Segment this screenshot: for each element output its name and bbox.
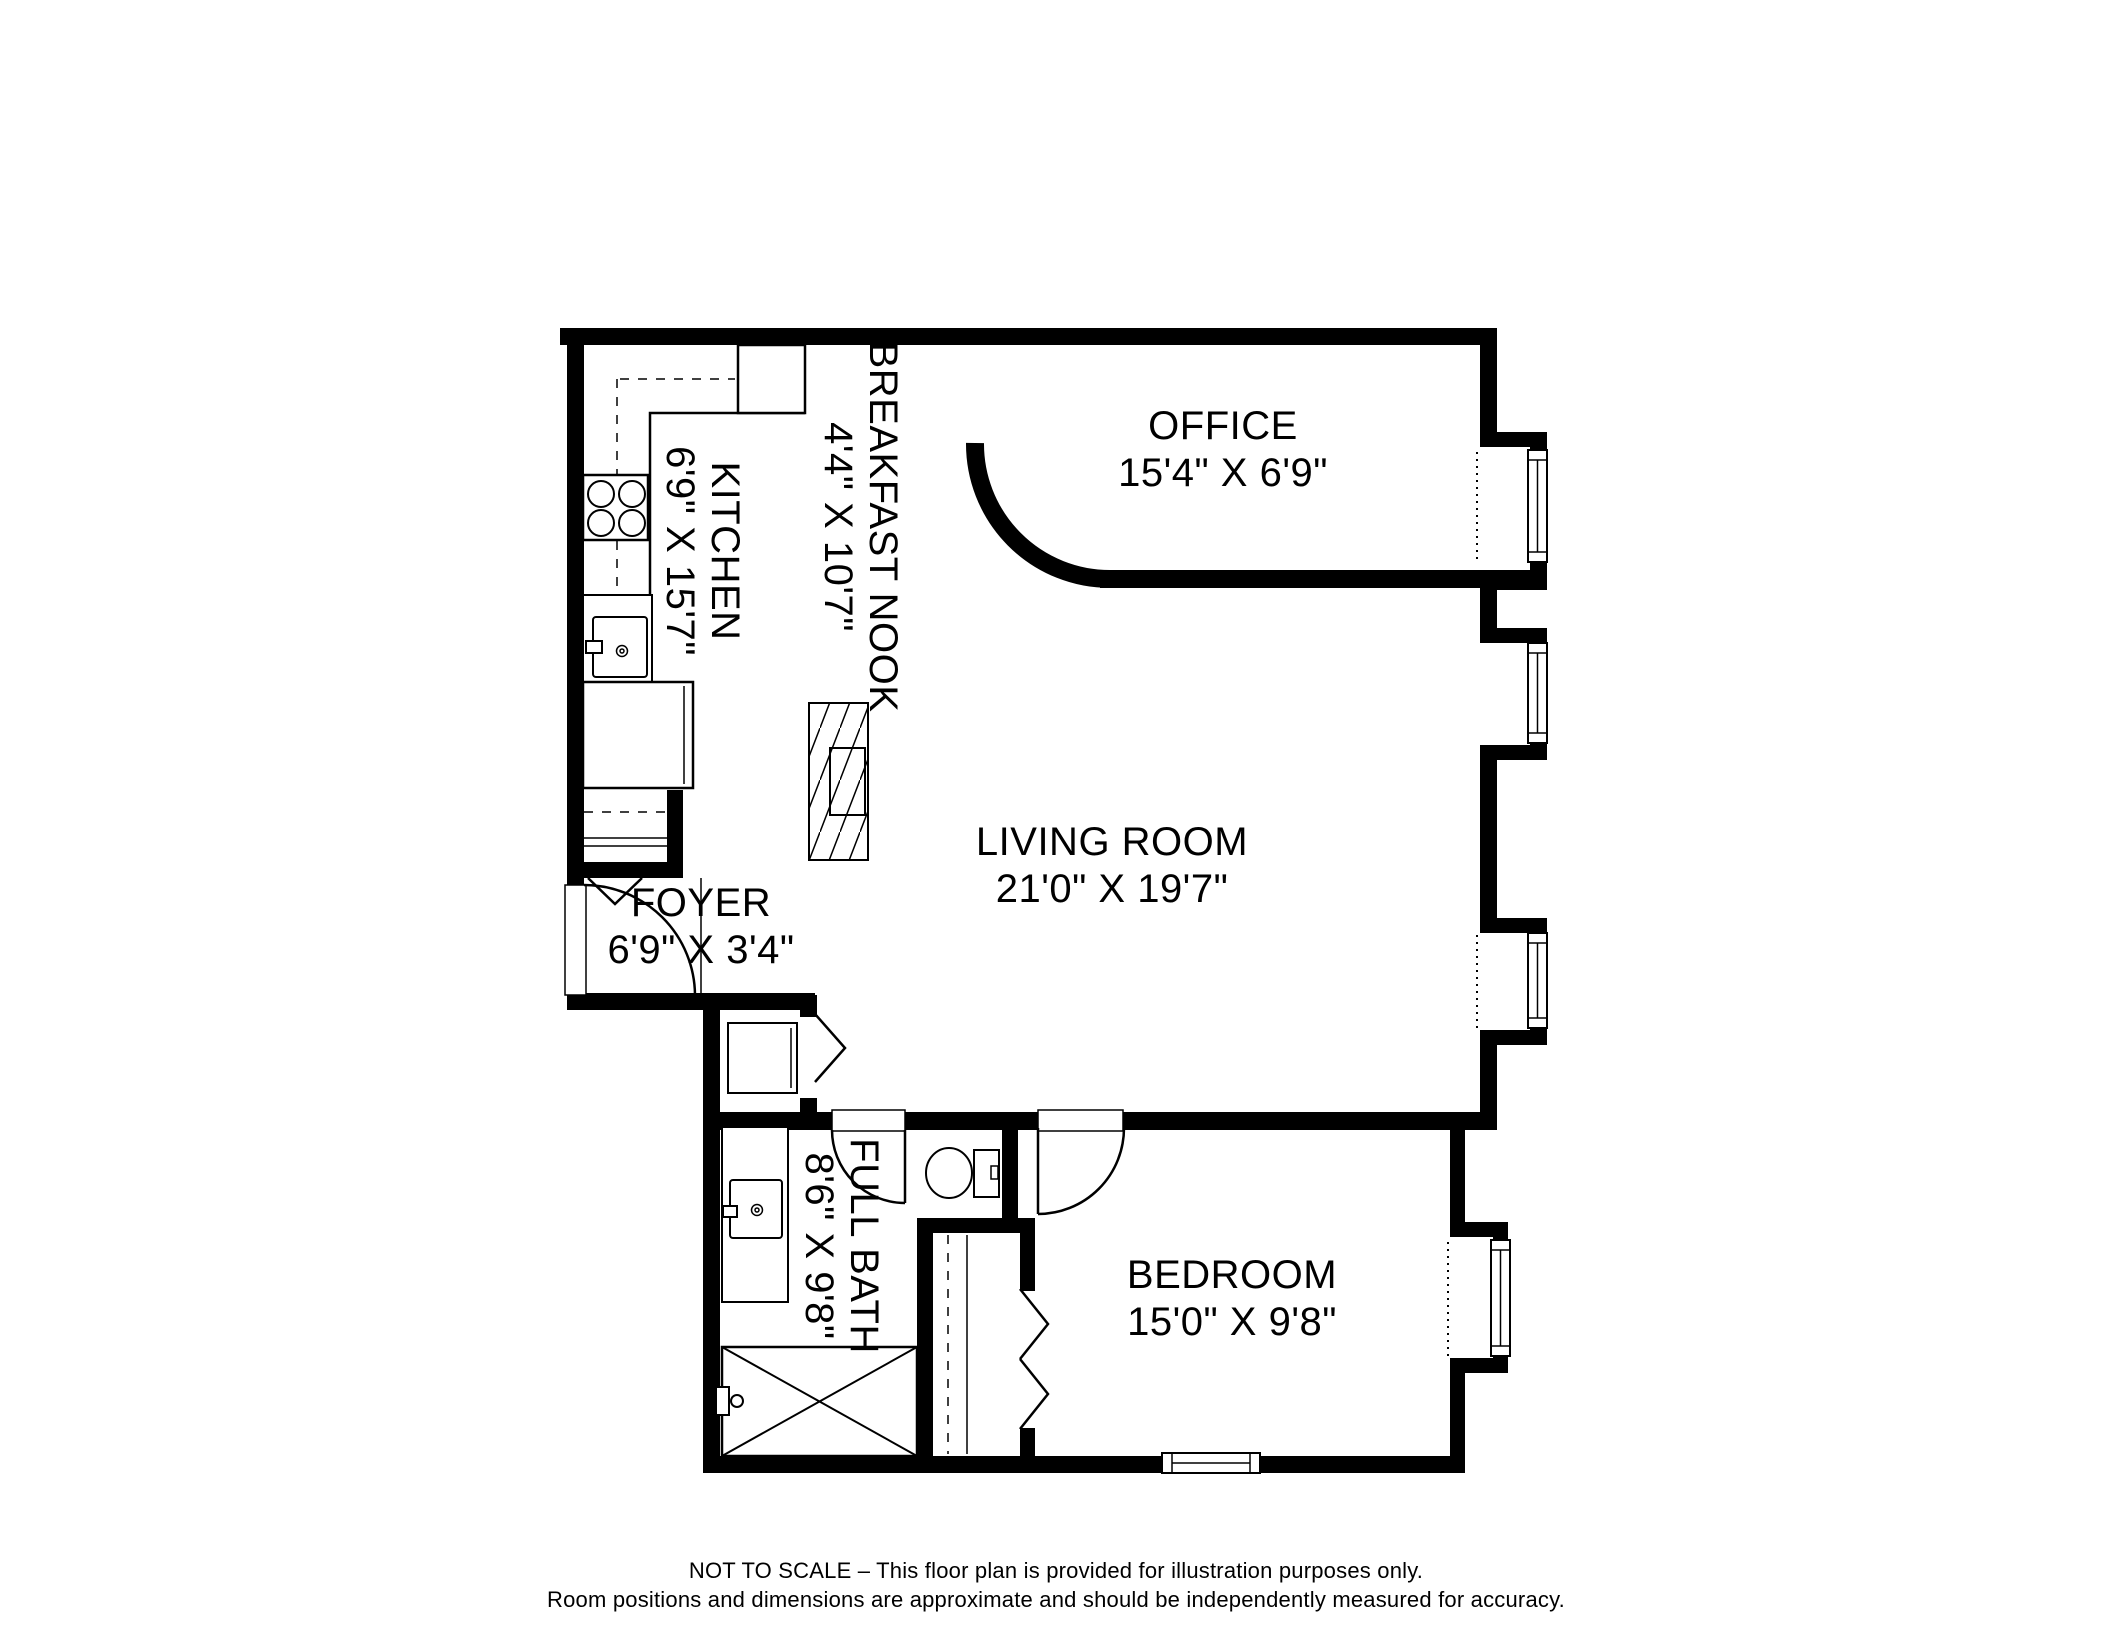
room-label-foyer: FOYER 6'9" X 3'4" [607,880,794,974]
room-name: LIVING ROOM [976,819,1248,866]
room-label-kitchen: KITCHEN 6'9" X 15'7" [657,446,747,656]
stove-icon [583,475,648,540]
room-dimensions: 15'4" X 6'9" [1118,450,1328,497]
room-name: FOYER [607,880,794,927]
utility-closet [728,1023,797,1093]
room-dimensions: 6'9" X 3'4" [607,927,794,974]
dishwasher-icon [738,345,805,413]
room-dimensions: 21'0" X 19'7" [976,866,1248,913]
room-dimensions: 8'6" X 9'8" [796,1138,841,1354]
bathtub-icon [716,1347,917,1456]
island-counter-icon [809,703,868,860]
room-dimensions: 4'4" X 10'7" [815,342,860,713]
curved-wall [975,443,1110,579]
bedroom-bay-window [1448,1240,1510,1356]
living-room-bay-window-1 [1528,643,1547,743]
room-label-breakfast-nook: BREAKFAST NOOK 4'4" X 10'7" [815,342,905,713]
room-dimensions: 6'9" X 15'7" [657,446,702,656]
vanity-sink-icon [722,1127,788,1302]
disclaimer-line-2: Room positions and dimensions are approx… [0,1585,2112,1614]
room-label-office: OFFICE 15'4" X 6'9" [1118,403,1328,497]
room-dimensions: 15'0" X 9'8" [1127,1299,1337,1346]
coat-closet [584,812,667,846]
refrigerator-icon [583,682,693,788]
floor-plan-canvas [0,0,2112,1632]
disclaimer: NOT TO SCALE – This floor plan is provid… [0,1556,2112,1614]
bedroom-rear-window [1162,1453,1260,1473]
toilet-icon [926,1148,999,1198]
room-label-living-room: LIVING ROOM 21'0" X 19'7" [976,819,1248,913]
office-bay-window [1477,450,1547,562]
room-name: BEDROOM [1127,1252,1337,1299]
disclaimer-line-1: NOT TO SCALE – This floor plan is provid… [0,1556,2112,1585]
living-room-bay-window-2 [1477,933,1547,1028]
room-name: FULL BATH [841,1138,886,1354]
floor-plan-page: OFFICE 15'4" X 6'9" BREAKFAST NOOK 4'4" … [0,0,2112,1632]
room-name: BREAKFAST NOOK [860,342,905,713]
kitchen-sink-icon [583,595,652,682]
bedroom-door [1038,1110,1124,1214]
room-label-full-bath: FULL BATH 8'6" X 9'8" [796,1138,886,1354]
room-name: KITCHEN [702,446,747,656]
room-name: OFFICE [1118,403,1328,450]
bedroom-closet [948,1235,967,1454]
bedroom-closet-bifold-doors [1020,1289,1048,1429]
room-label-bedroom: BEDROOM 15'0" X 9'8" [1127,1252,1337,1346]
interior-walls [583,570,1532,1473]
utility-closet-bifold-door [815,1014,845,1082]
